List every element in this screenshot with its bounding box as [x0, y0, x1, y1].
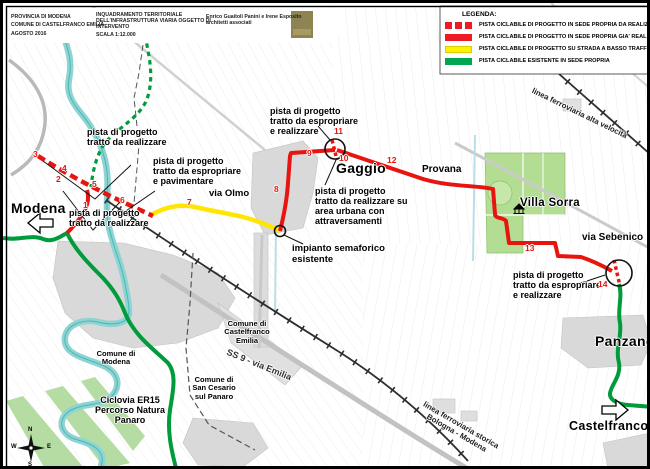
canal [275, 225, 276, 315]
waypoint-2: 2 [56, 174, 61, 184]
town-label-castelfranco: Castelfranco [569, 419, 648, 433]
area-label-comune-san-cesario: Comune di San Cesario sul Panaro [189, 376, 239, 401]
annotation-impianto-semaforico: impianto semaforico esistente [292, 244, 385, 265]
waypoint-7: 7 [187, 197, 192, 207]
title-col-architects: Enrico Guaitoli Panini e Irene Esposito … [206, 15, 301, 27]
area-label-ciclovia-er15: Ciclovia ER15 Percorso Natura Panaro [94, 395, 166, 425]
waypoint-4: 4 [62, 163, 67, 173]
title-col-scale: SCALA 1:12.000 [96, 31, 136, 39]
annotation-area-urbana-attraversamenti: pista di progetto tratto da realizzare s… [315, 186, 408, 226]
waypoint-8: 8 [274, 184, 279, 194]
place-label-villa-sorra: Villa Sorra [520, 197, 580, 210]
town-label-modena: Modena [11, 201, 66, 217]
compass-n: N [28, 427, 32, 433]
annotation-espropriare-pavimentare: pista di progetto tratto da espropriare … [153, 156, 241, 186]
territorial-map-sheet: PROVINCIA DI MODENA COMUNE DI CASTELFRAN… [0, 0, 650, 469]
annotation-espropriare-realizzare-gaggio: pista di progetto tratto da espropriare … [270, 106, 358, 136]
studio-logo-band [293, 29, 311, 35]
waypoint-5: 5 [92, 179, 97, 189]
waypoint-6: 6 [120, 195, 125, 205]
waypoint-12: 12 [387, 155, 396, 165]
waypoint-1: 1 [83, 200, 88, 210]
area-label-comune-castelfranco: Comune di Castelfranco Emilia [222, 320, 272, 345]
waypoint-9: 9 [307, 148, 312, 158]
legend-label: PISTA CICLABILE DI PROGETTO SU STRADA A … [479, 46, 650, 52]
legend-swatch-solid-green [445, 58, 472, 66]
compass-s: S [28, 462, 32, 468]
annotation-espropriare-realizzare-panzano: pista di progetto tratto da espropriare … [513, 270, 601, 300]
compass-e: E [47, 444, 51, 450]
town-label-panzano: Panzano [595, 334, 650, 350]
legend-swatch-solid-yellow [445, 46, 472, 54]
road-label-provana: Provana [422, 164, 461, 175]
compass-w: W [11, 444, 17, 450]
waypoint-11: 11 [334, 126, 343, 136]
waypoint-14: 14 [598, 279, 607, 289]
area-label-comune-modena: Comune di Modena [91, 350, 141, 367]
waypoint-10: 10 [339, 153, 348, 163]
waypoint-3: 3 [33, 149, 38, 159]
annotation-tratto-da-realizzare-nw: pista di progetto tratto da realizzare [87, 127, 167, 147]
legend-label: PISTA CICLABILE DI PROGETTO IN SEDE PROP… [479, 22, 650, 28]
legend-label: PISTA CICLABILE ESISTENTE IN SEDE PROPRI… [479, 58, 610, 64]
road-label-via-olmo: via Olmo [209, 189, 249, 200]
title-col-object: INQUADRAMENTO TERRITORIALE DELL'INFRASTR… [96, 13, 211, 31]
waypoint-13: 13 [525, 243, 534, 253]
town-label-gaggio: Gaggio [336, 161, 386, 177]
legend-title: LEGENDA: [462, 11, 496, 18]
legend-label: PISTA CICLABILE DI PROGETTO IN SEDE PROP… [479, 34, 650, 40]
title-col-province: PROVINCIA DI MODENA COMUNE DI CASTELFRAN… [11, 13, 104, 38]
road-label-via-sebenico: via Sebenico [582, 232, 643, 243]
legend-swatch-solid-red [445, 34, 472, 42]
annotation-tratto-da-realizzare-modena: pista di progetto tratto da realizzare [69, 208, 149, 228]
legend-swatch-dashed-red [445, 22, 472, 30]
